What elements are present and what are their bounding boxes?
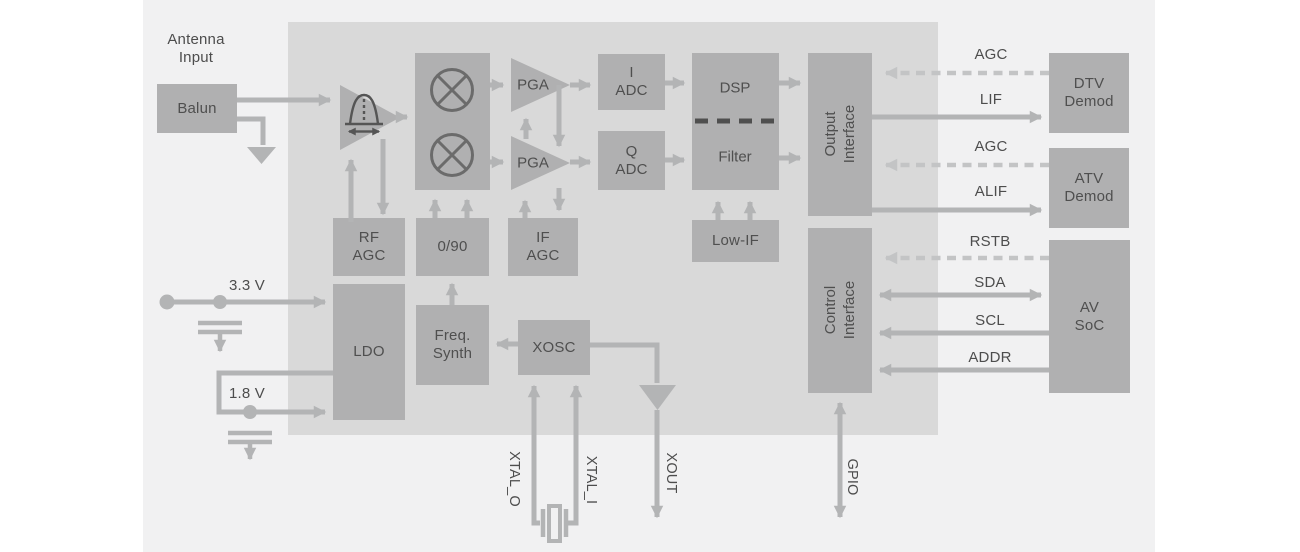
wire-balun-ground — [237, 119, 263, 145]
wire-xosc-xout — [590, 345, 657, 383]
pga-q-label: PGA — [517, 155, 549, 172]
scl-label: SCL — [950, 312, 1030, 330]
lna-amplifier — [340, 85, 400, 150]
pga-i-label: PGA — [517, 77, 549, 94]
control-interface-line2: Interface — [840, 281, 859, 339]
gpio-label: GPIO — [844, 458, 860, 495]
wires-layer — [0, 0, 1300, 552]
supply-3v3-label: 3.3 V — [222, 277, 272, 295]
ground-icon — [247, 147, 276, 164]
agc-atv-label: AGC — [955, 138, 1027, 156]
capacitor-1v8-icon — [228, 433, 272, 459]
alif-label: ALIF — [955, 183, 1027, 201]
wire-xtal-i — [568, 386, 576, 523]
mixer-i-icon — [432, 70, 473, 111]
sda-label: SDA — [950, 274, 1030, 292]
addr-label: ADDR — [950, 349, 1030, 367]
filter-label: Filter — [718, 149, 751, 166]
supply-1v8-junction — [243, 405, 257, 419]
xtal-i-label: XTAL_I — [583, 456, 599, 504]
crystal-icon — [543, 506, 566, 541]
output-interface-line2: Interface — [840, 105, 859, 163]
rstb-label: RSTB — [950, 233, 1030, 251]
lif-label: LIF — [955, 91, 1027, 109]
wire-xtal-o — [534, 386, 540, 523]
clock-buffer-icon — [639, 385, 676, 410]
control-interface-label: Control Interface — [821, 281, 859, 339]
dsp-label: DSP — [720, 80, 751, 97]
agc-dtv-label: AGC — [955, 46, 1027, 64]
tuner-block-diagram: Balun I ADC Q ADC Low-IF RF AGC 0/90 IF … — [0, 0, 1300, 552]
xtal-o-label: XTAL_O — [506, 451, 522, 507]
control-interface-line1: Control — [821, 281, 840, 339]
mixer-q-icon — [432, 135, 473, 176]
xout-label: XOUT — [663, 452, 679, 493]
antenna-input-line2: Input — [146, 49, 246, 67]
output-interface-line1: Output — [821, 105, 840, 163]
antenna-input-label: Antenna Input — [146, 31, 246, 67]
antenna-input-line1: Antenna — [146, 31, 246, 49]
capacitor-3v3-icon — [198, 323, 242, 351]
supply-1v8-label: 1.8 V — [222, 385, 272, 403]
output-interface-label: Output Interface — [821, 105, 859, 163]
